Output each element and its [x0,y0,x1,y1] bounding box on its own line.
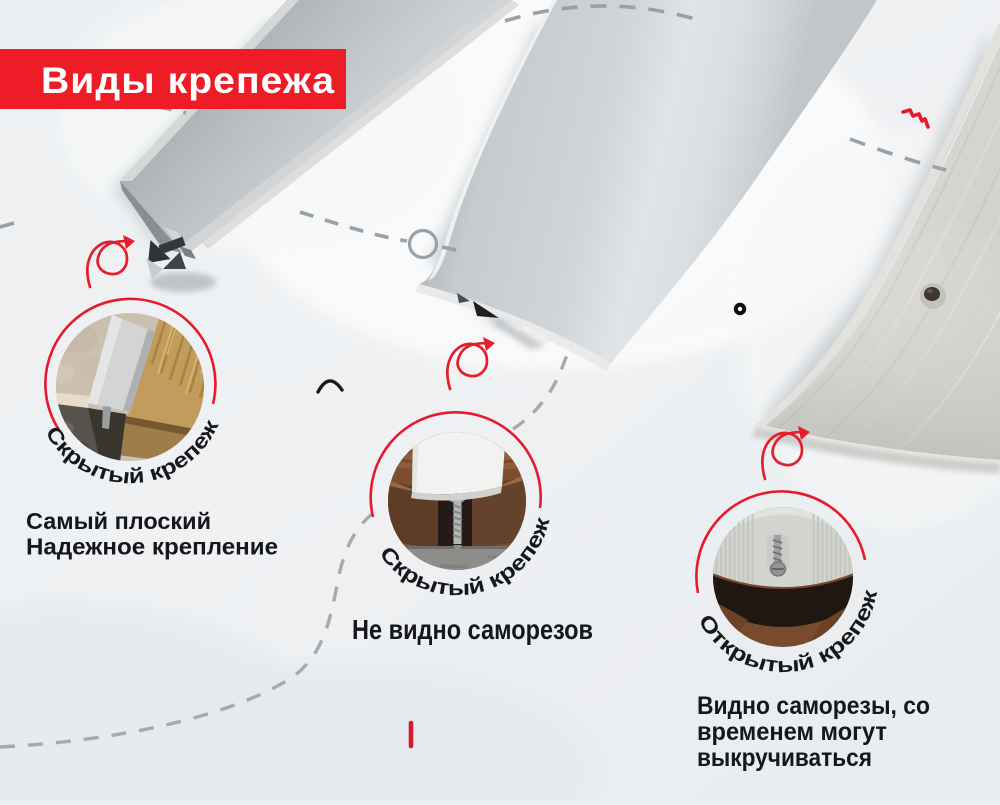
svg-text:Виды крепежа: Виды крепежа [41,60,335,101]
svg-text:выкручиваться: выкручиваться [697,744,872,772]
svg-text:Самый плоский: Самый плоский [26,508,211,534]
svg-text:Не видно саморезов: Не видно саморезов [352,614,593,645]
svg-text:Видно саморезы, со: Видно саморезы, со [697,692,930,720]
svg-text:временем могут: временем могут [697,718,887,746]
svg-text:Надежное крепление: Надежное крепление [26,534,278,560]
